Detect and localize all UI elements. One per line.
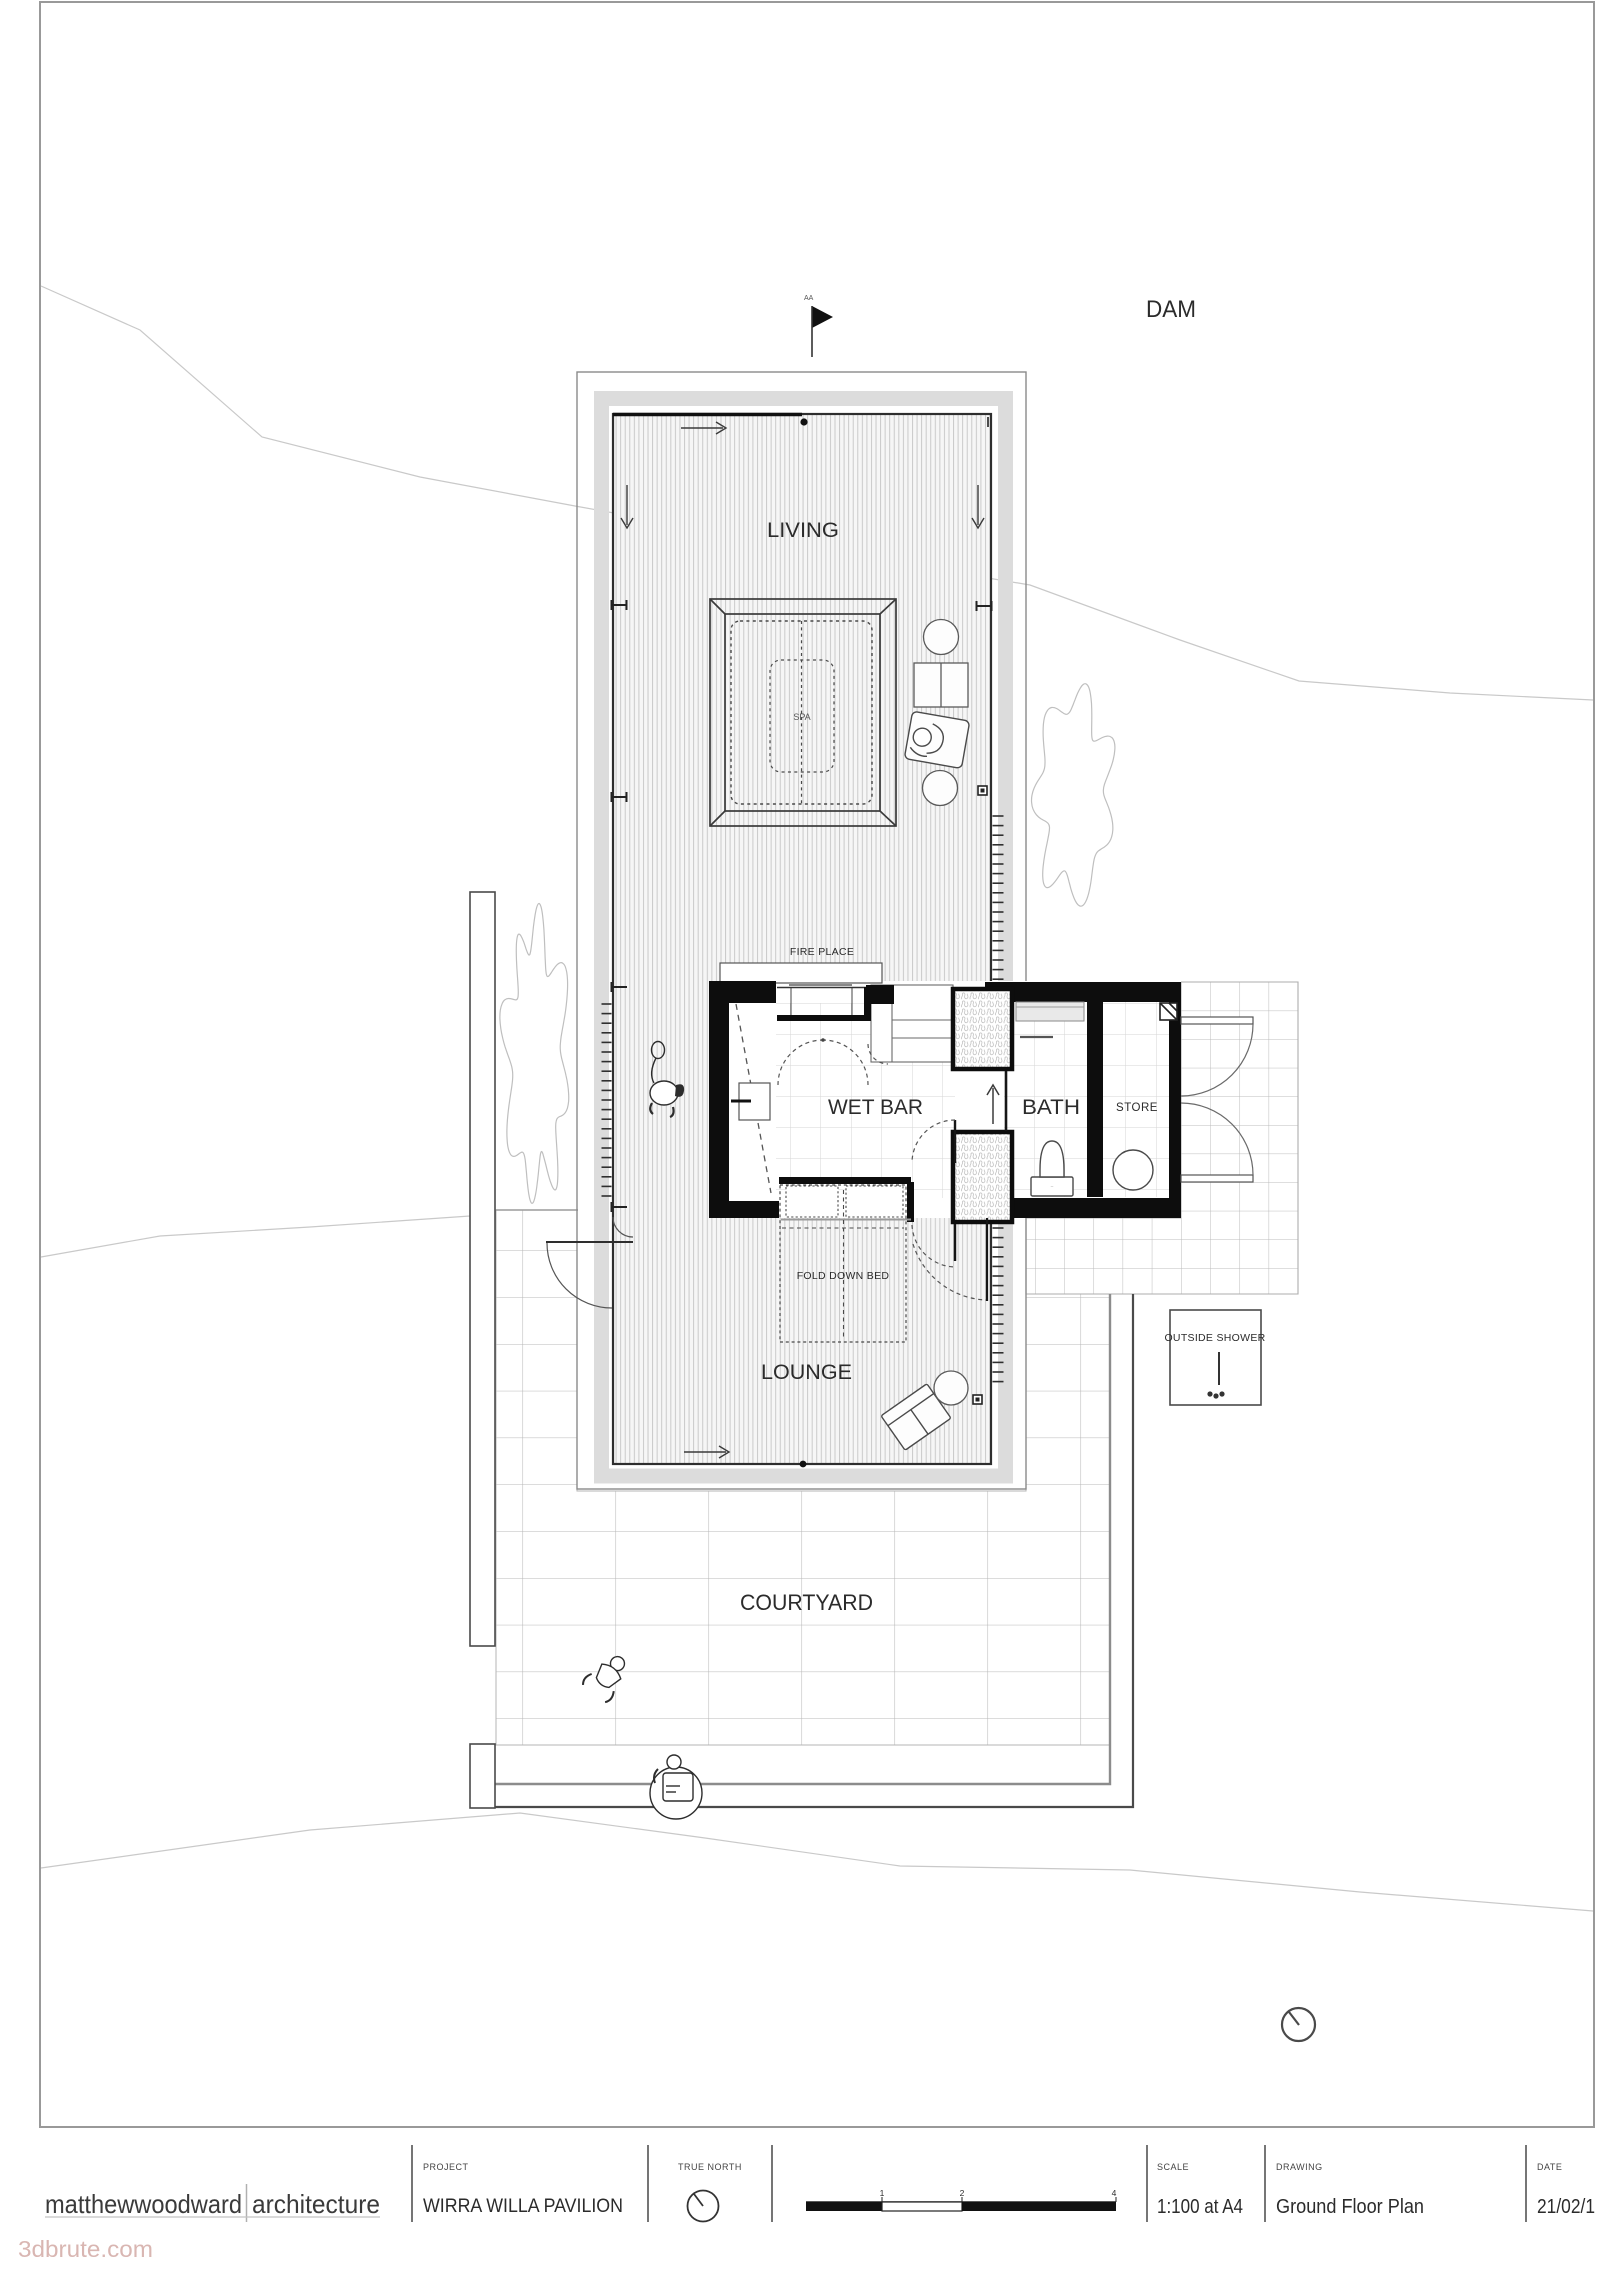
svg-text:WET BAR: WET BAR [828,1096,923,1119]
svg-text:1:100 at A4: 1:100 at A4 [1157,2196,1243,2218]
svg-text:SPA: SPA [793,712,810,722]
svg-text:3dbrute.com: 3dbrute.com [18,2236,153,2262]
svg-text:LIVING: LIVING [767,518,839,542]
svg-text:DATE: DATE [1537,2162,1562,2172]
svg-text:Ground Floor Plan: Ground Floor Plan [1276,2196,1424,2218]
svg-text:TRUE NORTH: TRUE NORTH [678,2162,742,2172]
svg-text:architecture: architecture [252,2189,380,2219]
svg-text:LOUNGE: LOUNGE [761,1360,852,1384]
svg-text:4: 4 [1112,2188,1117,2198]
svg-text:DRAWING: DRAWING [1276,2162,1323,2172]
svg-text:1: 1 [880,2188,885,2198]
svg-text:21/02/1: 21/02/1 [1537,2196,1595,2218]
svg-text:WIRRA WILLA PAVILION: WIRRA WILLA PAVILION [423,2195,623,2217]
svg-text:FOLD DOWN BED: FOLD DOWN BED [797,1270,890,1282]
svg-text:BATH: BATH [1022,1096,1080,1119]
svg-text:matthewwoodward: matthewwoodward [45,2189,242,2219]
svg-text:OUTSIDE SHOWER: OUTSIDE SHOWER [1164,1332,1265,1344]
svg-text:FIRE PLACE: FIRE PLACE [790,946,854,958]
svg-text:2: 2 [960,2188,965,2198]
svg-text:PROJECT: PROJECT [423,2162,469,2172]
svg-text:AA: AA [804,295,814,302]
svg-text:COURTYARD: COURTYARD [740,1590,873,1615]
svg-text:STORE: STORE [1116,1102,1158,1114]
svg-text:DAM: DAM [1146,296,1196,323]
svg-text:SCALE: SCALE [1157,2162,1189,2172]
